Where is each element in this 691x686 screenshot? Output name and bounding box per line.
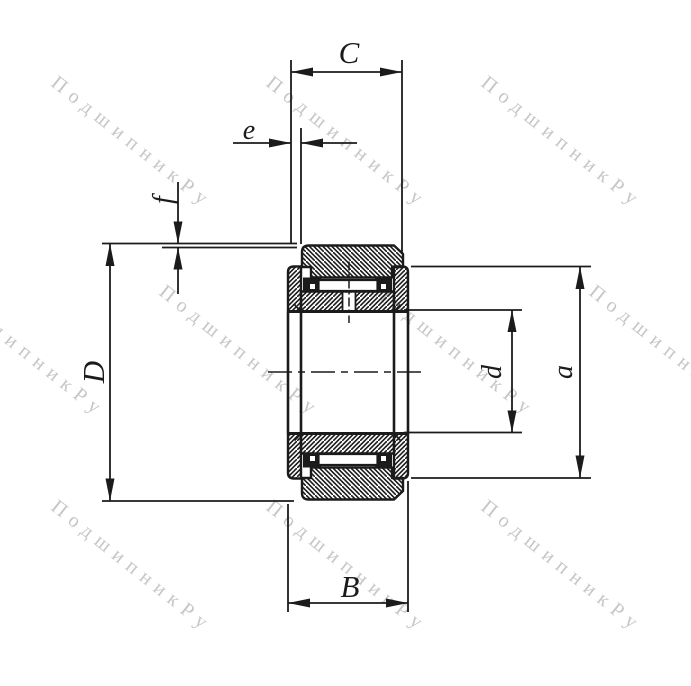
cage-notch (381, 284, 386, 289)
cage-notch (381, 456, 386, 461)
dim-label-d: d (477, 364, 508, 379)
dim-label-B: B (341, 569, 360, 604)
dim-label-D: D (76, 361, 111, 384)
bearing-drawing-page: ПодшипникРу ПодшипникРу ПодшипникРу Подш… (0, 0, 691, 686)
dim-d (508, 310, 517, 433)
watermark: ПодшипникРу (0, 281, 110, 423)
cage-notch (310, 284, 315, 289)
washer-top-right (394, 267, 408, 312)
outer-ring-top (302, 246, 403, 278)
roller-bottom (319, 454, 378, 465)
dim-label-e: e (243, 115, 255, 146)
cage-notch (310, 456, 315, 461)
washer-bottom-right (394, 434, 408, 479)
watermark: ПодшипникРу (47, 496, 217, 638)
outer-ring-bottom (302, 468, 403, 500)
roller-top (319, 280, 378, 291)
dim-label-C: C (339, 35, 360, 70)
watermark: ПодшипникРу (47, 72, 217, 214)
inner-ring-bottom (301, 434, 394, 454)
bearing-bottom-section (288, 434, 408, 500)
dim-label-a: a (548, 365, 579, 379)
bearing-drawing: ПодшипникРу ПодшипникРу ПодшипникРу Подш… (0, 0, 691, 686)
watermark: ПодшипникРу (477, 72, 647, 214)
watermark: ПодшипникРу (585, 281, 691, 423)
watermark-layer: ПодшипникРу ПодшипникРу ПодшипникРу Подш… (0, 72, 691, 638)
watermark: ПодшипникРу (477, 496, 647, 638)
dim-label-f: f (148, 193, 179, 204)
